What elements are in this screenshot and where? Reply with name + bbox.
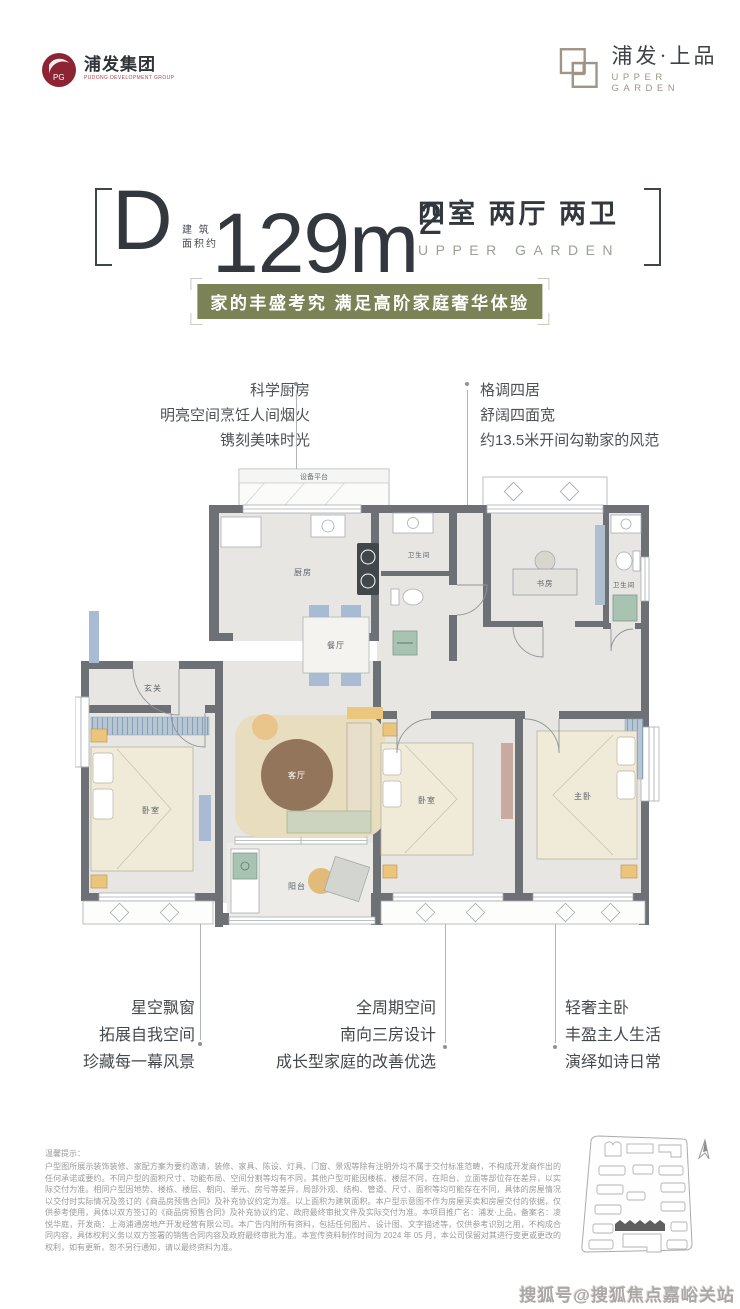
- callout-line: 科学厨房: [90, 378, 310, 403]
- unit-letter: D: [112, 178, 172, 262]
- brand-logo: 浦发·上品 UPPER GARDEN: [556, 44, 740, 94]
- rooms-spec: 四室 两厅 两卫 UPPER GARDEN: [418, 192, 620, 258]
- callout-line: 珍藏每一幕风景: [45, 1049, 195, 1076]
- callout-line: 镌刻美味时光: [90, 428, 310, 453]
- watermark: 搜狐号@搜狐焦点嘉峪关站: [519, 1281, 735, 1306]
- rooms-spec-cn: 四室 两厅 两卫: [418, 192, 620, 231]
- callout-line: 格调四居: [480, 378, 715, 403]
- poster-page: PG 浦发集团 PUDONG DEVELOPMENT GROUP 浦发·上品 U…: [0, 0, 740, 1309]
- callout-baywindow: 星空飘窗 拓展自我空间 珍藏每一幕风景: [45, 995, 195, 1076]
- rooms-spec-en: UPPER GARDEN: [418, 242, 620, 258]
- banner-corner-icon: [190, 313, 202, 325]
- svg-text:PG: PG: [53, 73, 65, 82]
- room-label-bath2: 卫生间: [613, 580, 636, 589]
- room-label-balcony: 阳台: [288, 881, 306, 891]
- room-label-bedroom1: 卧室: [142, 805, 160, 815]
- room-label-living: 客厅: [288, 770, 306, 780]
- disclaimer-title: 温馨提示：: [45, 1148, 561, 1159]
- brand-logo-cn: 浦发·上品: [611, 44, 740, 68]
- callout-line: 约13.5米开间勾勒家的风范: [480, 428, 715, 453]
- area-number: 129m: [212, 196, 418, 290]
- slogan-text: 家的丰盛考究 满足高阶家庭奢华体验: [210, 294, 529, 313]
- callout-line: 轻奢主卧: [565, 995, 725, 1022]
- room-label-kitchen: 厨房: [294, 567, 312, 577]
- compass-icon: [699, 1140, 709, 1159]
- callout-line: 全周期空间: [228, 995, 436, 1022]
- study-bay-window: [483, 477, 607, 507]
- group-logo: PG 浦发集团 PUDONG DEVELOPMENT GROUP: [40, 50, 174, 92]
- callout-fullcycle: 全周期空间 南向三房设计 成长型家庭的改善优选: [228, 995, 436, 1076]
- callout-line: 舒阔四面宽: [480, 403, 715, 428]
- floor-plan: 设备平台: [75, 465, 665, 940]
- leader-dot: [294, 382, 298, 386]
- site-plan: [575, 1128, 720, 1278]
- room-label-dining: 餐厅: [327, 641, 345, 650]
- callout-line: 南向三房设计: [228, 1022, 436, 1049]
- group-logo-cn: 浦发集团: [84, 56, 174, 74]
- title-bracket-left: [95, 188, 112, 266]
- slogan-banner: 家的丰盛考究 满足高阶家庭奢华体验: [197, 284, 542, 319]
- callout-line: 明亮空间烹饪人间烟火: [90, 403, 310, 428]
- callout-line: 丰盈主人生活: [565, 1022, 725, 1049]
- room-label-master: 主卧: [574, 791, 592, 801]
- equipment-platform: 设备平台: [239, 469, 389, 507]
- room-label-bath1: 卫生间: [408, 550, 431, 559]
- title-bracket-right: [644, 188, 661, 266]
- area-value: 129m2: [212, 178, 443, 285]
- room-label-bedroom2: 卧室: [418, 795, 436, 805]
- banner-corner-icon: [538, 278, 550, 290]
- brand-logo-en: UPPER GARDEN: [611, 72, 740, 94]
- group-logo-en: PUDONG DEVELOPMENT GROUP: [84, 75, 174, 81]
- room-label-study: 书房: [537, 578, 554, 588]
- room-label-equipment: 设备平台: [300, 472, 328, 481]
- group-logo-icon: PG: [40, 50, 78, 92]
- banner-corner-icon: [190, 278, 202, 290]
- leader-dot: [553, 1045, 557, 1049]
- leader-dot: [443, 1045, 447, 1049]
- callout-line: 星空飘窗: [45, 995, 195, 1022]
- callout-kitchen: 科学厨房 明亮空间烹饪人间烟火 镌刻美味时光: [90, 378, 310, 453]
- leader-dot: [465, 382, 469, 386]
- callout-master: 轻奢主卧 丰盈主人生活 演绎如诗日常: [565, 995, 725, 1076]
- room-label-foyer: 玄关: [144, 683, 162, 693]
- leader-dot: [198, 1042, 202, 1046]
- callout-line: 成长型家庭的改善优选: [228, 1049, 436, 1076]
- disclaimer-body: 户型图所展示装饰装修、家配方案为要约邀请，装修、家具、陈设、灯具、门窗、景观等除…: [45, 1161, 561, 1253]
- callout-layout: 格调四居 舒阔四面宽 约13.5米开间勾勒家的风范: [480, 378, 715, 453]
- banner-corner-icon: [538, 313, 550, 325]
- brand-logo-icon: [556, 44, 601, 94]
- disclaimer: 温馨提示： 户型图所展示装饰装修、家配方案为要约邀请，装修、家具、陈设、灯具、门…: [45, 1148, 561, 1253]
- callout-line: 演绎如诗日常: [565, 1049, 725, 1076]
- callout-line: 拓展自我空间: [45, 1022, 195, 1049]
